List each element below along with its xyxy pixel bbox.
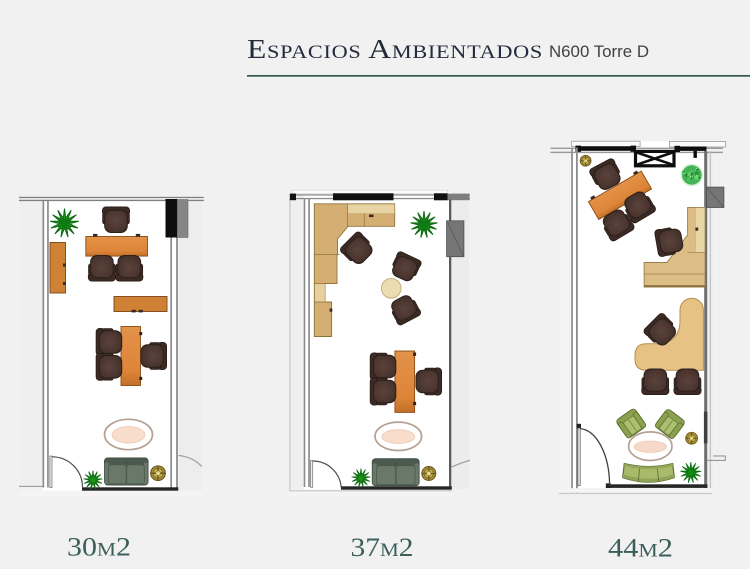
svg-text:30m2: 30m2 (67, 532, 131, 562)
svg-text:37m2: 37m2 (351, 532, 414, 562)
svg-text:N600 Torre D: N600 Torre D (549, 43, 649, 61)
svg-text:Espacios Ambientados: Espacios Ambientados (247, 34, 543, 64)
svg-text:44m2: 44m2 (608, 533, 673, 563)
